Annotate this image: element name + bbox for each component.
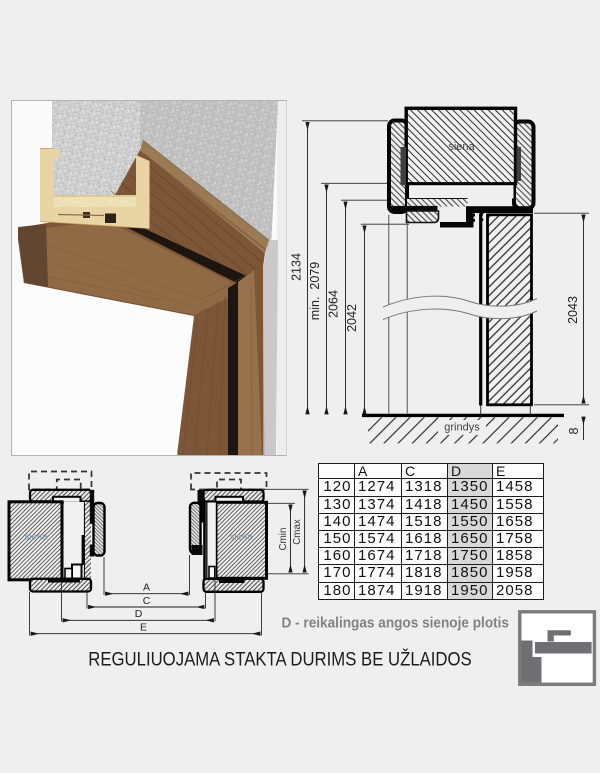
svg-text:siena: siena	[25, 532, 48, 543]
svg-text:siena: siena	[448, 141, 475, 153]
svg-text:2064: 2064	[327, 290, 341, 318]
svg-text:D - reikalingas angos sienoje: D - reikalingas angos sienoje plotis	[282, 616, 510, 632]
svg-text:2134: 2134	[290, 253, 304, 281]
svg-text:E: E	[140, 622, 147, 634]
svg-text:Cmin: Cmin	[278, 528, 289, 551]
svg-text:2043: 2043	[566, 296, 580, 324]
svg-text:C: C	[143, 595, 151, 607]
svg-text:2042: 2042	[345, 304, 359, 332]
svg-text:A: A	[143, 582, 150, 594]
svg-text:D: D	[135, 608, 143, 620]
svg-text:Cmax: Cmax	[292, 519, 303, 545]
svg-text:grindys: grindys	[444, 422, 480, 434]
svg-text:REGULIUOJAMA STAKTA DURIMS BE: REGULIUOJAMA STAKTA DURIMS BE UŽLAIDOS	[88, 648, 471, 671]
svg-text:min. 2079: min. 2079	[308, 262, 322, 320]
svg-text:8: 8	[567, 427, 581, 434]
svg-text:siena: siena	[230, 532, 253, 543]
